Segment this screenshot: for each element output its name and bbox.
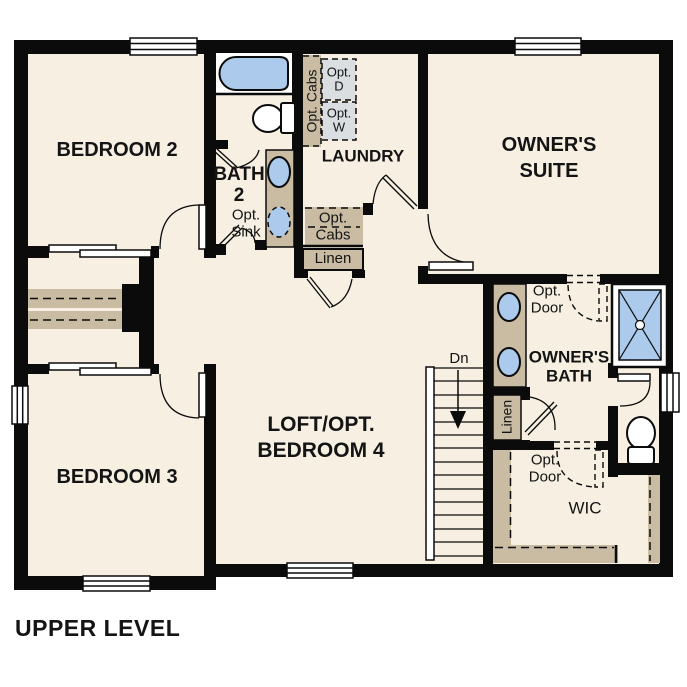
room-label-bedroom-2: BEDROOM 2 [56, 139, 177, 161]
label-opt-washer: Opt. W [327, 107, 352, 136]
label-opt-dryer: Opt. D [327, 66, 352, 95]
room-label-owners-suite: OWNER'S SUITE [502, 132, 597, 184]
shower [612, 284, 667, 367]
bathtub [216, 53, 292, 94]
label-opt-sink: Opt. Sink [231, 208, 260, 241]
optional-sink-bath2 [268, 207, 290, 237]
room-label-wic: WIC [568, 500, 601, 519]
window-loft-bottom [287, 563, 353, 578]
window-bedroom2-top [130, 38, 197, 55]
floor-plan: BEDROOM 2 BATH 2 LAUNDRY OWNER'S SUITE B… [0, 0, 687, 687]
label-opt-door-wic: Opt. Door [529, 453, 562, 486]
window-bedroom3-bottom [83, 576, 150, 591]
label-stairs-down: Dn [449, 351, 468, 368]
owners-bath-vanity [493, 284, 526, 387]
room-label-bedroom-3: BEDROOM 3 [56, 466, 177, 488]
label-opt-door-suite: Opt. Door [531, 284, 564, 317]
plan-title: UPPER LEVEL [15, 615, 180, 642]
toilet-owners-bath [627, 417, 655, 464]
label-opt-cabs-base: Opt. Cabs [315, 211, 350, 244]
window-bedroom3-left [12, 386, 28, 424]
label-opt-cabs-wall: Opt. Cabs [304, 69, 319, 132]
room-label-bath-2: BATH 2 [213, 165, 264, 207]
sink-owners-1 [498, 293, 520, 321]
toilet-bath2 [253, 103, 295, 133]
room-label-laundry: LAUNDRY [322, 148, 404, 167]
sink-bath2 [268, 157, 290, 187]
window-toilet-right [661, 373, 679, 412]
floor-plan-graphics [0, 0, 687, 687]
room-label-loft: LOFT/OPT. BEDROOM 4 [257, 412, 384, 465]
vanity-bath2 [266, 150, 294, 247]
label-linen-hall: Linen [315, 251, 352, 268]
room-label-owners-bath: OWNER'S BATH [529, 348, 610, 385]
window-owners-suite-top [515, 38, 581, 55]
sink-owners-2 [498, 348, 520, 376]
label-linen-owners: Linen [499, 400, 514, 434]
